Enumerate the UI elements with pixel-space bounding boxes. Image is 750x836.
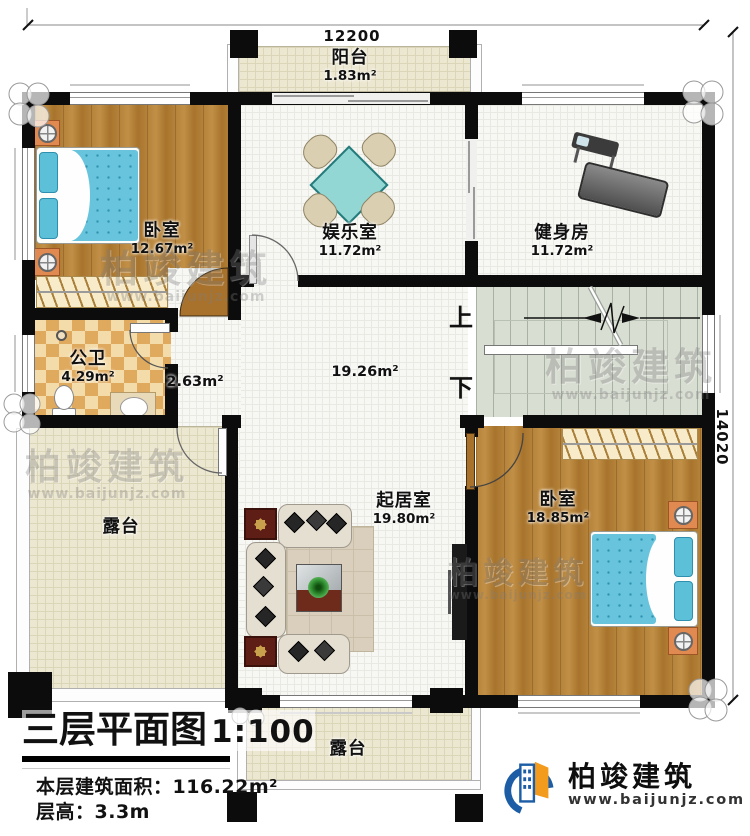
tv-bracket [448,570,451,614]
tv [452,544,467,640]
sliding-door-panel [348,100,428,102]
stairs-handrail [484,345,638,355]
window-sill [719,315,721,393]
window-sill [14,335,16,392]
sofa-left [246,542,286,638]
nightstand [668,627,698,655]
room-label-balcony: 阳台 1.83m² [290,49,410,84]
room-label-bedroom1: 卧室 12.67m² [102,222,222,257]
room-name: 卧室 [498,491,618,511]
light-icon [56,330,67,341]
wall [702,92,715,708]
terrace-left-floor [28,426,230,694]
bed-pillow [674,537,693,577]
treadmill-belt [577,161,670,219]
window [702,315,715,393]
bed-pillow [674,581,693,621]
dim-tick [728,695,738,705]
brand-logo-icon [502,752,560,818]
room-area: 19.26m² [305,364,425,380]
title-block: 三层平面图 1:100 [22,710,315,751]
floor-area-label: 本层建筑面积： [36,776,173,798]
cushion [255,606,276,627]
wall [22,308,170,320]
lamp-icon [38,124,57,143]
window [522,92,644,105]
sofa-bottom [278,634,350,674]
brand-text: 柏竣建筑 www.baijunjz.com [568,762,745,809]
room-label-entertainment: 娱乐室 11.72m² [290,224,410,259]
lamp-icon [674,506,693,525]
terrace-bottom-parapet-right [471,706,481,788]
pillar [230,30,258,58]
sliding-door-panel [468,141,470,193]
title-underline [22,756,230,762]
wall [465,92,478,139]
nightstand [34,120,60,146]
nightstand [34,248,60,276]
room-label-living: 起居室 19.80m² [344,492,464,527]
sliding-door [466,139,477,241]
title-thinline [22,768,230,769]
room-name: 露台 [61,518,181,538]
room-area: 12.67m² [102,242,222,257]
door-leaf [249,235,257,284]
pillar [449,30,477,58]
stairs-up-label: 上 [449,298,473,333]
room-label-bathroom: 公卫 4.29m² [28,350,148,385]
star-icon [254,645,267,658]
pillar [455,794,483,822]
room-name: 阳台 [290,49,410,69]
nightstand [668,501,698,529]
room-area: 4.29m² [28,370,148,385]
cushion [255,548,276,569]
sliding-door-panel [274,95,354,97]
window-sill [14,148,16,260]
room-label-corridor: 2.63m² [135,374,255,390]
cushion [314,640,335,661]
window [518,695,640,708]
brand-name: 柏竣建筑 [568,762,745,793]
bed-pillow [39,198,58,239]
wall [22,415,178,428]
wall [222,415,241,428]
floor-height-value: 3.3m [95,801,150,823]
floor-area-line: 本层建筑面积：116.22m² [36,772,278,799]
sliding-door-panel [473,187,475,239]
dim-tick [23,20,33,30]
sofa-top [278,504,352,548]
room-area: 1.83m² [290,69,410,84]
cushion [253,576,274,597]
toilet [54,385,74,410]
wardrobe [562,428,698,460]
door-leaf [466,433,475,490]
floor-height-line: 层高：3.3m [36,797,150,824]
window [280,695,412,708]
cushion [306,510,327,531]
dim-width: 12200 [300,27,404,45]
wall [298,275,480,287]
window [22,148,35,260]
stairs-guide [494,320,668,394]
brand-website: www.baijunjz.com [568,792,745,808]
dim-tick [699,20,709,30]
treadmill-rail [573,147,580,163]
room-area: 19.80m² [344,512,464,527]
page-title: 三层平面图 [22,710,207,751]
cushion [288,641,309,662]
window-sill [518,712,640,714]
cushion [284,512,305,533]
door-leaf [218,428,227,476]
floor-plan: 阳台 1.83m² 卧室 12.67m² 娱乐室 11.72m² 健身房 11.… [0,0,750,836]
dim-tick [728,27,738,37]
side-table [244,636,277,667]
room-label-gym: 健身房 11.72m² [502,224,622,259]
room-area: 18.85m² [498,511,618,526]
window-sill [522,84,644,86]
plant-icon [308,577,329,598]
wall [465,275,715,287]
room-name: 公卫 [28,350,148,370]
room-name: 起居室 [344,492,464,512]
room-name: 卧室 [102,222,222,242]
terrace-left-parapet-side [16,428,30,696]
pillar [430,688,463,713]
room-area: 2.63m² [135,374,255,390]
room-label-terrace-left: 露台 [61,518,181,538]
room-name: 健身房 [502,224,622,244]
room-label-bedroom2: 卧室 18.85m² [498,491,618,526]
room-area: 11.72m² [502,244,622,259]
bed-pillow [39,152,58,193]
window-sill [70,84,190,86]
window [70,92,190,105]
door-leaf [130,323,170,333]
plan-scale: 1:100 [211,715,315,751]
brand-logo: 柏竣建筑 www.baijunjz.com [502,752,745,818]
room-label-hall: 19.26m² [305,364,425,380]
stairs-down-label: 下 [449,368,473,403]
floor-area-value: 116.22m² [173,776,278,798]
side-table [244,508,277,540]
lamp-icon [674,632,693,651]
sliding-door [272,93,430,104]
lamp-icon [38,253,57,272]
star-icon [254,518,267,531]
room-area: 11.72m² [290,244,410,259]
wall [523,415,715,428]
wardrobe [36,276,168,308]
floor-height-label: 层高： [36,801,95,823]
dim-height: 14020 [713,407,731,467]
room-name: 娱乐室 [290,224,410,244]
